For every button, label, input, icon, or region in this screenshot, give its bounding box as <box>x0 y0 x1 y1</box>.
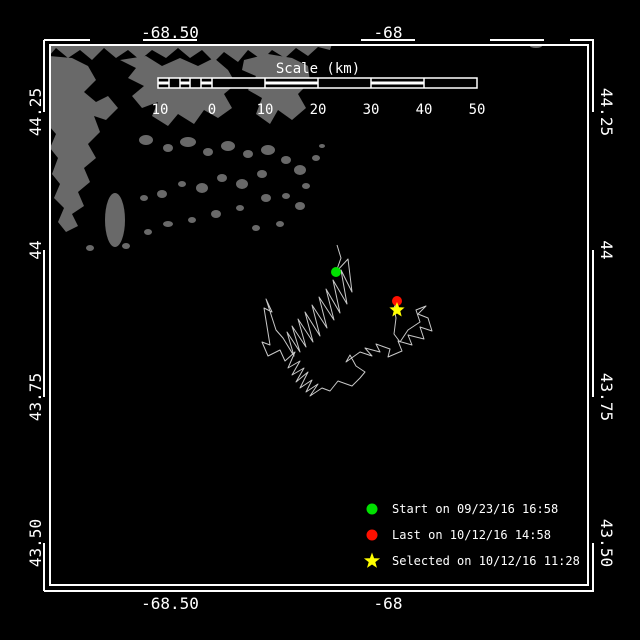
island <box>243 150 253 158</box>
island <box>203 148 213 156</box>
island <box>163 221 173 227</box>
island <box>144 229 152 235</box>
island <box>257 170 267 178</box>
axis-label-left-3: 43.75 <box>28 373 44 421</box>
island <box>281 156 291 164</box>
island <box>196 183 208 193</box>
track-path[interactable] <box>262 245 432 396</box>
axis-label-right-3: 43.75 <box>598 373 614 421</box>
axis-label-right-2: 44 <box>598 240 614 259</box>
island <box>294 165 306 175</box>
island <box>236 179 248 189</box>
scale-tick-40: 40 <box>416 103 433 117</box>
island <box>86 245 94 251</box>
axis-label-left-2: 44 <box>28 240 44 259</box>
island <box>217 174 227 182</box>
legend-label-last: Last on 10/12/16 14:58 <box>392 529 551 541</box>
coastline-central-mass <box>120 56 236 126</box>
scale-tick-10: 10 <box>257 103 274 117</box>
island <box>312 155 320 161</box>
scale-tick-0: 0 <box>208 103 216 117</box>
scale-tick-20: 20 <box>310 103 327 117</box>
axis-label-left-4: 43.50 <box>28 519 44 567</box>
marker-start[interactable] <box>331 267 341 277</box>
island <box>140 195 148 201</box>
island <box>139 135 153 145</box>
legend-last-dot <box>367 530 378 541</box>
legend-markers <box>364 504 380 568</box>
axis-label-bottom-2: -68 <box>374 596 403 612</box>
marker-selected[interactable] <box>389 302 404 317</box>
axis-label-left-1: 44.25 <box>28 88 44 136</box>
island <box>261 194 271 202</box>
scale-tick-30: 30 <box>363 103 380 117</box>
island <box>105 193 125 247</box>
island <box>236 205 244 211</box>
island <box>319 144 325 148</box>
scale-bar <box>158 78 477 88</box>
legend-label-start: Start on 09/23/16 16:58 <box>392 503 558 515</box>
axis-label-right-1: 44.25 <box>598 88 614 136</box>
island <box>211 210 221 218</box>
island <box>252 225 260 231</box>
island <box>188 217 196 223</box>
axis-label-top-1: -68.50 <box>141 25 199 41</box>
island <box>180 137 196 147</box>
island <box>276 221 284 227</box>
island <box>295 202 305 210</box>
scale-tick-50: 50 <box>469 103 486 117</box>
island <box>302 183 310 189</box>
island <box>157 190 167 198</box>
axis-label-bottom-1: -68.50 <box>141 596 199 612</box>
island <box>261 145 275 155</box>
legend-label-selected: Selected on 10/12/16 11:28 <box>392 555 580 567</box>
scale-bar-title: Scale (km) <box>276 62 360 76</box>
scale-tick-10L: 10 <box>152 103 169 117</box>
axis-label-top-2: -68 <box>374 25 403 41</box>
legend-selected-star <box>364 553 380 568</box>
map-canvas[interactable] <box>0 0 640 640</box>
axis-label-right-4: 43.50 <box>598 519 614 567</box>
island <box>221 141 235 151</box>
island <box>178 181 186 187</box>
legend-start-dot <box>367 504 378 515</box>
island <box>122 243 130 249</box>
island <box>163 144 173 152</box>
track-map-viewer: -68.50 -68 -68.50 -68 44.25 44 43.75 43.… <box>0 0 640 640</box>
island <box>282 193 290 199</box>
